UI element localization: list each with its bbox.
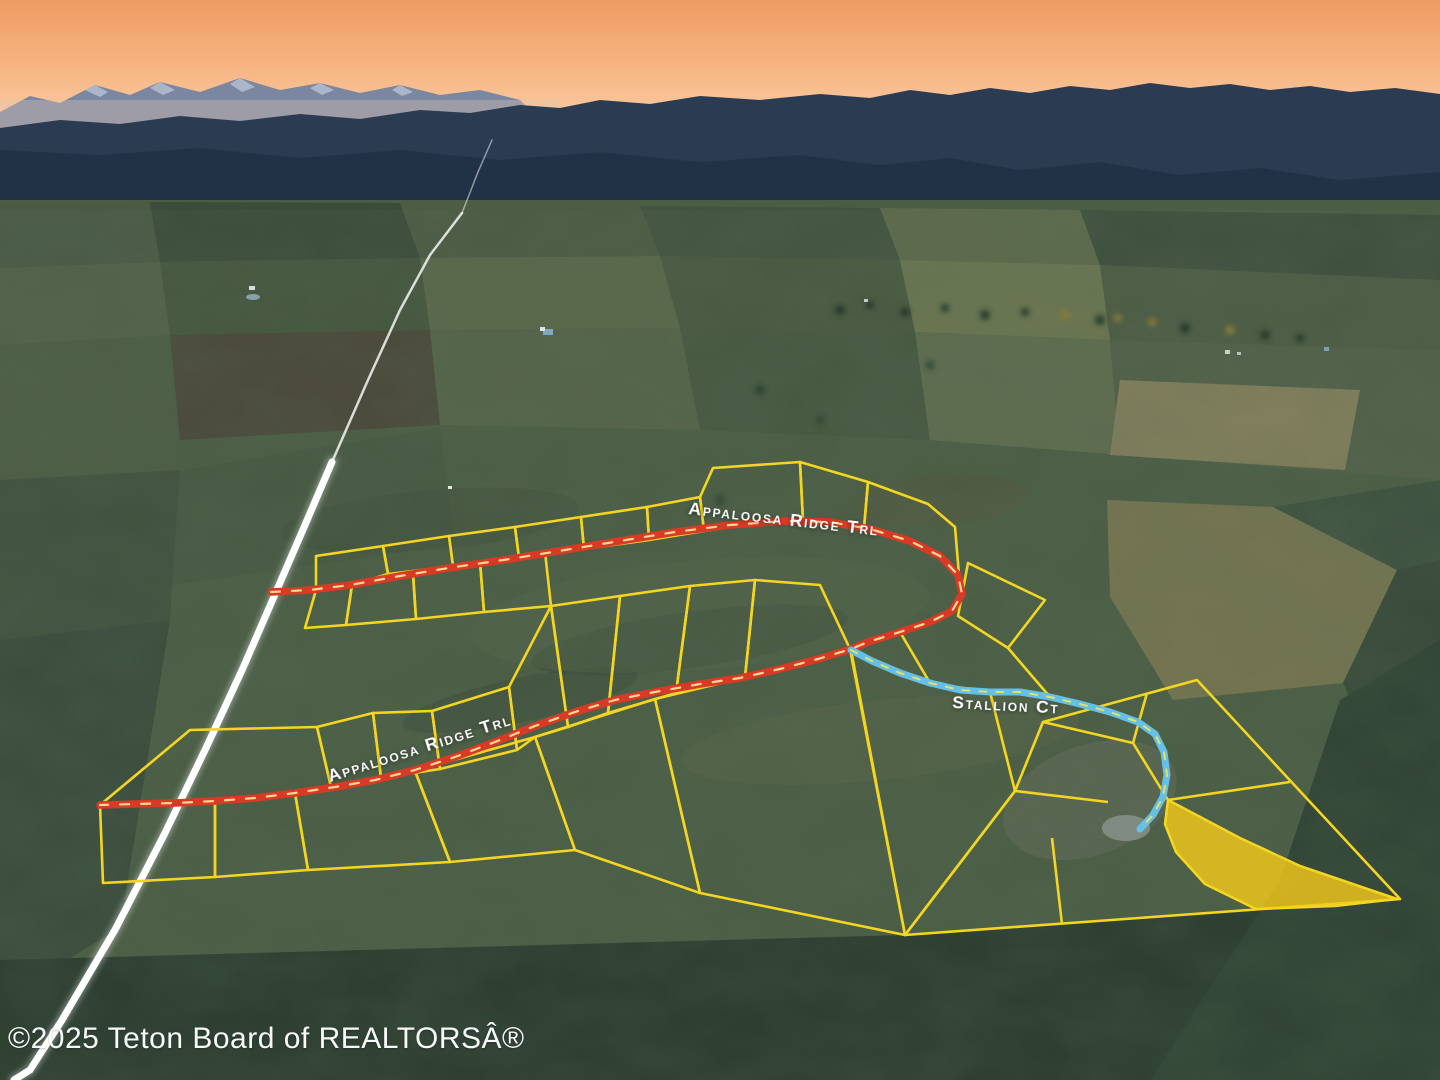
aerial-photo: Appaloosa Ridge Trl Appaloosa Ridge Trl … <box>0 0 1440 1080</box>
watermark: ©2025 Teton Board of REALTORSÂ® <box>8 1022 525 1056</box>
terrain-texture <box>0 210 1440 1080</box>
scene-svg: Appaloosa Ridge Trl Appaloosa Ridge Trl … <box>0 0 1440 1080</box>
pond <box>246 294 260 300</box>
